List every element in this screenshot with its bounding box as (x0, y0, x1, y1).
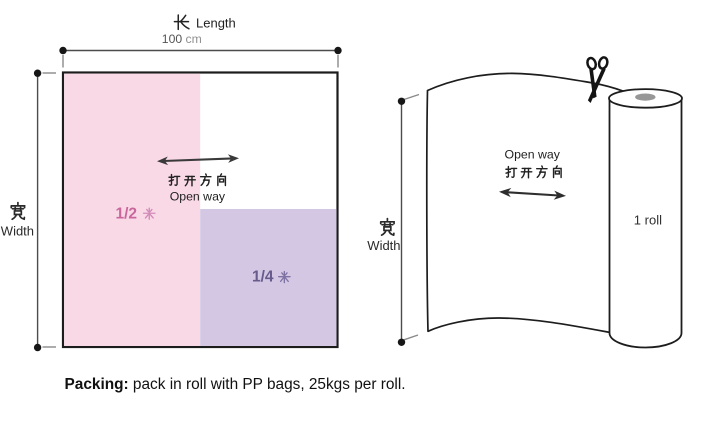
svg-text:Packing: pack in roll with PP: Packing: pack in roll with PP bags, 25kg… (65, 376, 406, 393)
svg-text:Open way: Open way (505, 147, 561, 161)
svg-text:1/2: 1/2 (116, 205, 138, 222)
svg-text:Width: Width (1, 224, 34, 239)
svg-text:Width: Width (367, 238, 400, 253)
svg-text:100 cm: 100 cm (162, 32, 202, 46)
svg-text:1 roll: 1 roll (634, 213, 662, 228)
svg-text:Open way: Open way (170, 190, 226, 204)
svg-text:Length: Length (196, 16, 236, 31)
svg-text:1/4: 1/4 (252, 269, 274, 286)
